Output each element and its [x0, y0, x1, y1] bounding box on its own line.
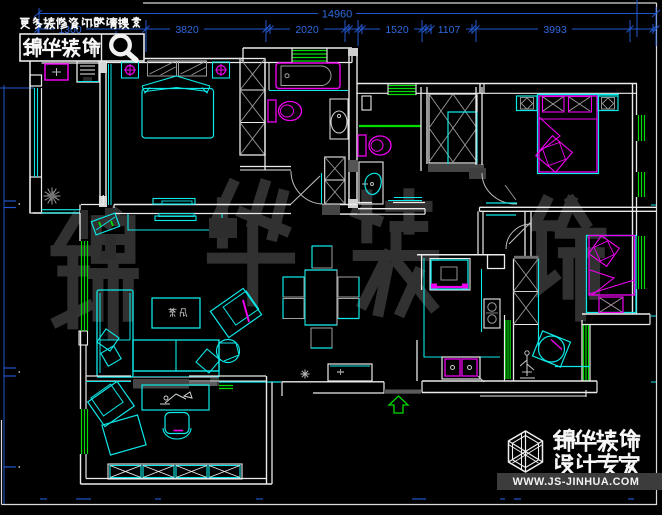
svg-text:3820: 3820	[175, 24, 199, 36]
svg-text:WWW.JS-JINHUA.COM: WWW.JS-JINHUA.COM	[513, 476, 640, 488]
svg-text:1520: 1520	[385, 24, 409, 36]
svg-text:3993: 3993	[543, 24, 567, 36]
svg-text:14960: 14960	[322, 9, 353, 21]
svg-text:1107: 1107	[438, 24, 461, 36]
svg-text:2020: 2020	[295, 24, 319, 36]
